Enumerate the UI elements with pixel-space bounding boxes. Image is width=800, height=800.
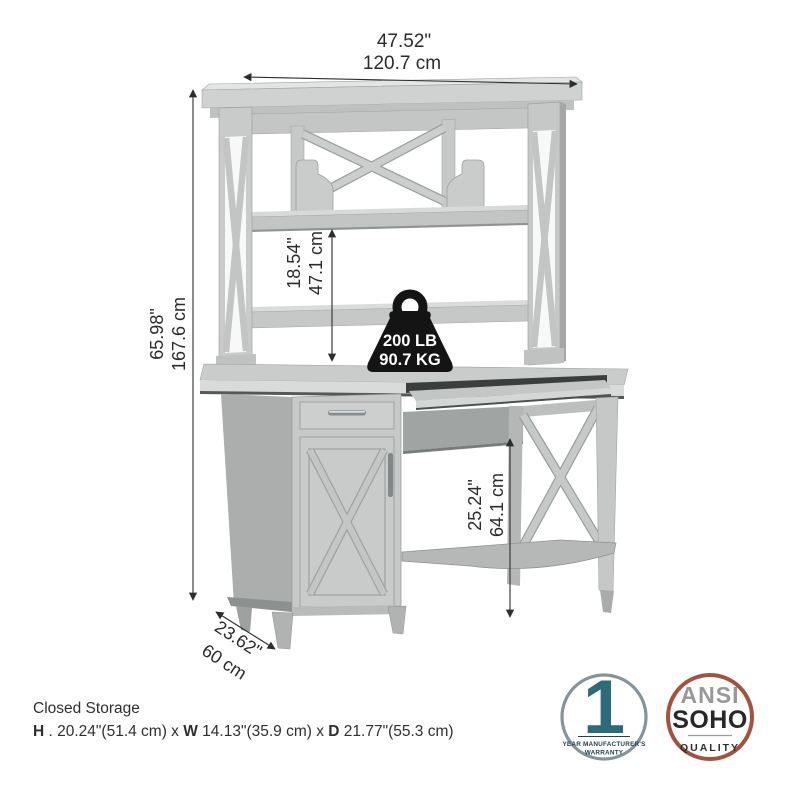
knee-clearance-cm: 64.1 cm (487, 473, 507, 537)
knee-clearance-inches: 25.24" (465, 479, 485, 530)
desk-illustration (200, 364, 628, 649)
ansi-soho-quality-badge: ANSI SOHO QUALITY (668, 675, 752, 759)
quality-badge-soho: SOHO (672, 706, 748, 734)
weight-capacity-kilograms: 90.7 KG (379, 351, 440, 369)
height-dimension-inches: 65.98" (147, 308, 167, 359)
warranty-badge: 1 YEAR MANUFACTURER'S WARRANTY (562, 665, 646, 759)
hutch-clearance-inches: 18.54" (284, 237, 304, 288)
quality-badge-quality: QUALITY (680, 742, 740, 754)
width-dimension-inches: 47.52" (377, 31, 431, 52)
warranty-badge-number: 1 (583, 665, 625, 750)
warranty-badge-line2: WARRANTY (585, 750, 624, 757)
width-dimension-cm: 120.7 cm (363, 53, 441, 74)
closed-storage-note: Closed Storage H . 20.24"(51.4 cm) x W 1… (33, 697, 454, 743)
hutch-clearance-cm: 47.1 cm (306, 231, 326, 295)
product-dimension-diagram: 200 LB 90.7 KG 47.52" 120.7 cm 65.98" 16… (0, 0, 800, 800)
quality-badge-ansi: ANSI (681, 682, 740, 708)
product-illustration: 200 LB 90.7 KG 47.52" 120.7 cm 65.98" 16… (0, 0, 800, 800)
closed-storage-dimensions: H . 20.24"(51.4 cm) x W 14.13"(35.9 cm) … (33, 720, 454, 743)
closed-storage-title: Closed Storage (33, 697, 454, 720)
warranty-badge-line1: YEAR MANUFACTURER'S (562, 741, 646, 748)
height-dimension-cm: 167.6 cm (169, 297, 189, 371)
weight-capacity-pounds: 200 LB (383, 332, 437, 350)
